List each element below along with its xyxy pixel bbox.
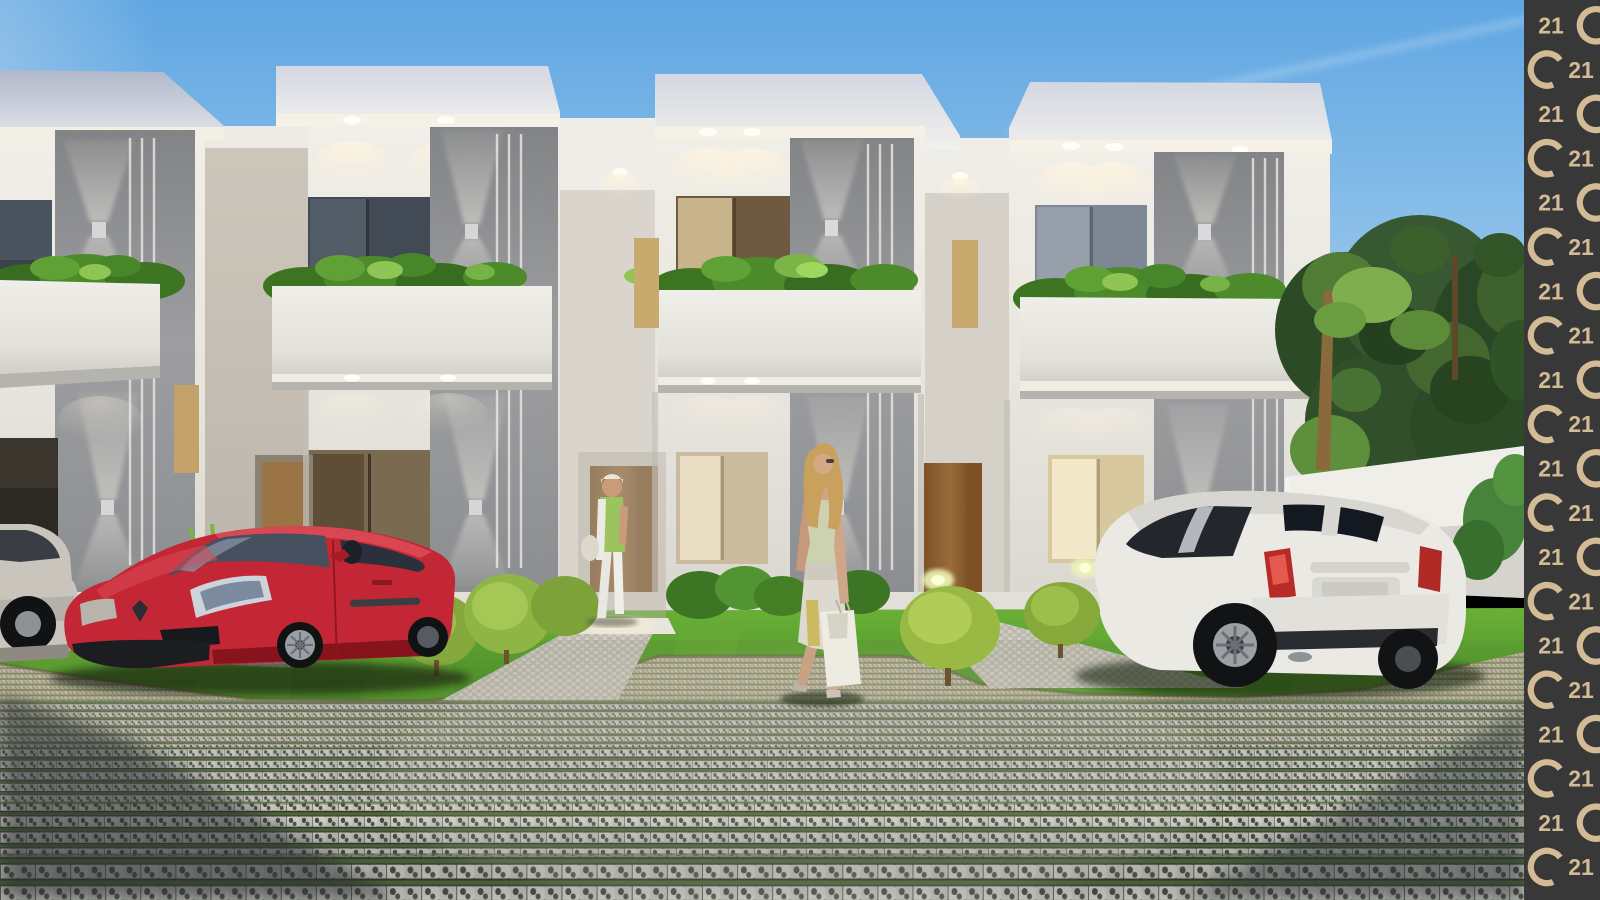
svg-text:21: 21 [1538, 367, 1564, 393]
svg-text:21: 21 [1568, 588, 1594, 614]
svg-text:21: 21 [1568, 57, 1594, 83]
svg-text:21: 21 [1538, 810, 1564, 836]
svg-text:21: 21 [1568, 411, 1594, 437]
svg-text:21: 21 [1568, 854, 1594, 880]
svg-text:21: 21 [1568, 323, 1594, 349]
svg-text:21: 21 [1568, 677, 1594, 703]
svg-text:21: 21 [1538, 190, 1564, 216]
svg-text:21: 21 [1568, 766, 1594, 792]
svg-text:21: 21 [1538, 278, 1564, 304]
svg-text:21: 21 [1538, 13, 1564, 39]
svg-text:21: 21 [1538, 101, 1564, 127]
svg-text:21: 21 [1538, 633, 1564, 659]
svg-text:21: 21 [1538, 544, 1564, 570]
svg-text:21: 21 [1538, 721, 1564, 747]
svg-text:21: 21 [1568, 500, 1594, 526]
svg-text:21: 21 [1538, 456, 1564, 482]
svg-text:21: 21 [1568, 234, 1594, 260]
svg-text:21: 21 [1568, 145, 1594, 171]
